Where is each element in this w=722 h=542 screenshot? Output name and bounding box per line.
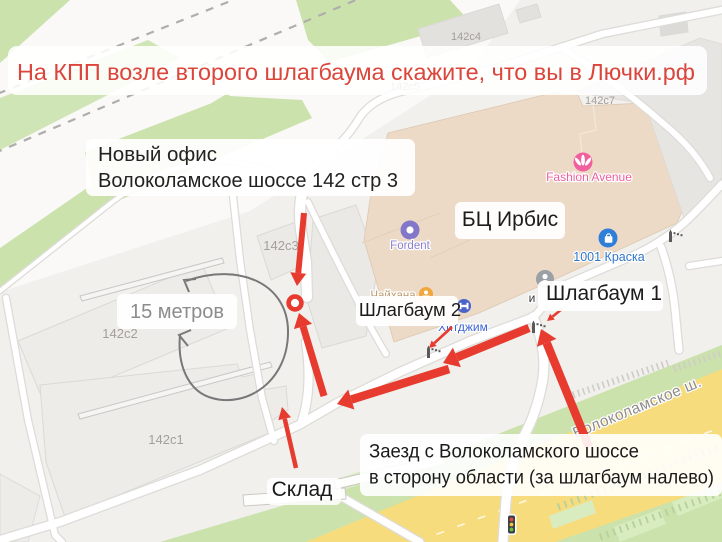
svg-text:142с4: 142с4 (451, 31, 481, 43)
svg-text:142с3: 142с3 (263, 238, 298, 253)
svg-text:и: и (529, 291, 536, 305)
svg-text:1001 Краска: 1001 Краска (573, 250, 644, 264)
svg-text:Заезд с Волоколамского шоссе: Заезд с Волоколамского шоссе (369, 441, 639, 463)
svg-text:142с1: 142с1 (148, 432, 183, 447)
svg-text:Новый офис: Новый офис (98, 143, 217, 166)
svg-text:Шлагбаум 1: Шлагбаум 1 (546, 282, 662, 305)
svg-text:На КПП возле второго шлагбаума: На КПП возле второго шлагбаума скажите, … (17, 59, 695, 85)
svg-text:Fordent: Fordent (390, 240, 430, 252)
svg-text:Шлагбаум 2: Шлагбаум 2 (359, 299, 461, 320)
svg-text:15 метров: 15 метров (130, 301, 224, 323)
svg-text:Склад: Склад (272, 478, 333, 501)
svg-text:Fashion Avenue: Fashion Avenue (546, 170, 632, 184)
svg-text:БЦ Ирбис: БЦ Ирбис (462, 208, 558, 231)
svg-text:142с7: 142с7 (585, 95, 615, 107)
svg-text:Волоколамское шоссе 142 стр 3: Волоколамское шоссе 142 стр 3 (98, 169, 398, 192)
svg-text:в сторону области (за шлагбаум: в сторону области (за шлагбаум налево) (369, 467, 714, 489)
